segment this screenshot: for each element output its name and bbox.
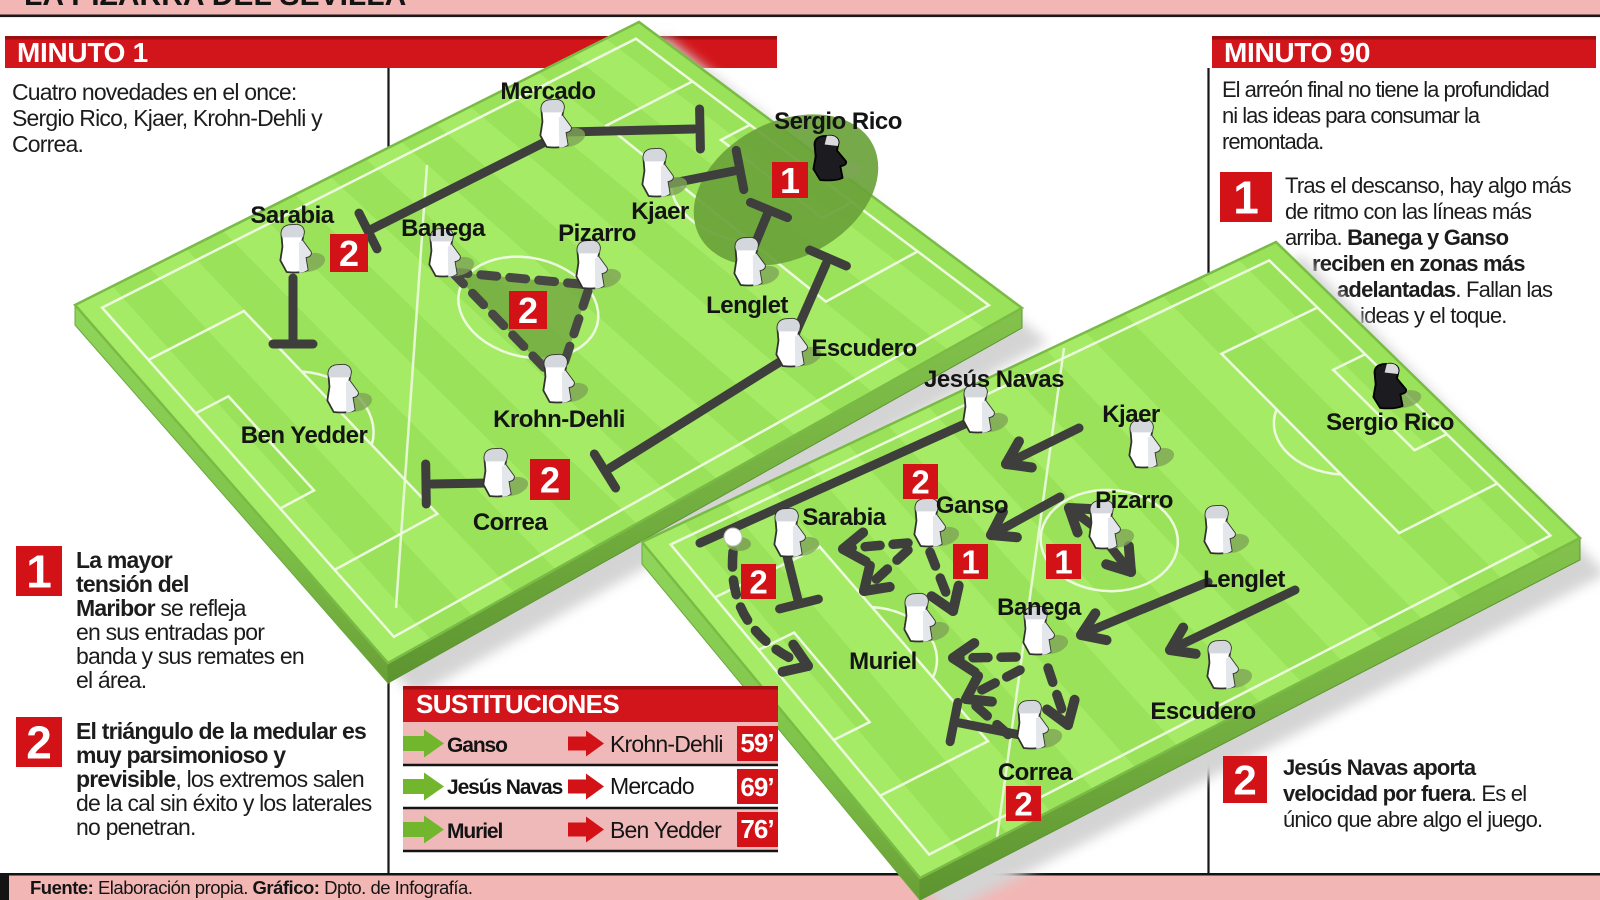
svg-text:2: 2 (911, 463, 929, 500)
svg-text:Ganso: Ganso (447, 734, 507, 757)
svg-text:Kjaer: Kjaer (631, 198, 689, 225)
svg-text:Mercado: Mercado (610, 773, 694, 799)
svg-text:Sergio Rico: Sergio Rico (774, 108, 902, 135)
svg-text:Escudero: Escudero (1150, 698, 1255, 725)
svg-text:LA PIZARRA DEL SEVILLA: LA PIZARRA DEL SEVILLA (24, 0, 406, 12)
svg-text:Pizarro: Pizarro (1095, 487, 1173, 514)
svg-text:Correa: Correa (473, 509, 549, 536)
svg-text:Sarabia: Sarabia (250, 202, 334, 229)
svg-text:2: 2 (749, 563, 767, 600)
svg-text:2: 2 (1014, 785, 1032, 822)
svg-text:Muriel: Muriel (849, 648, 917, 675)
svg-text:1: 1 (1233, 172, 1259, 224)
svg-text:1: 1 (961, 543, 979, 580)
svg-text:Ganso: Ganso (936, 492, 1008, 519)
svg-text:Krohn-Dehli: Krohn-Dehli (493, 406, 625, 433)
svg-text:1: 1 (780, 160, 800, 201)
svg-text:59’: 59’ (740, 728, 773, 758)
svg-text:76’: 76’ (740, 814, 773, 844)
svg-text:Escudero: Escudero (811, 335, 916, 362)
svg-text:Correa: Correa (998, 759, 1074, 786)
svg-text:Fuente: Elaboración propia. Gr: Fuente: Elaboración propia. Gráfico: Dpt… (30, 877, 472, 898)
svg-text:Sarabia: Sarabia (802, 504, 886, 531)
svg-text:2: 2 (26, 717, 52, 769)
svg-text:Lenglet: Lenglet (706, 292, 788, 319)
svg-text:Mercado: Mercado (500, 78, 595, 105)
svg-text:2: 2 (1233, 757, 1256, 804)
svg-text:MINUTO 1: MINUTO 1 (17, 37, 148, 68)
svg-text:Ben Yedder: Ben Yedder (241, 422, 368, 449)
svg-text:1: 1 (26, 546, 52, 598)
svg-text:69’: 69’ (740, 772, 773, 802)
svg-text:Kjaer: Kjaer (1102, 401, 1160, 428)
svg-text:Ben Yedder: Ben Yedder (610, 817, 722, 843)
svg-text:Pizarro: Pizarro (558, 220, 636, 247)
svg-text:SUSTITUCIONES: SUSTITUCIONES (416, 689, 619, 719)
svg-text:2: 2 (540, 460, 560, 501)
svg-text:Banega: Banega (997, 594, 1082, 621)
svg-text:Sergio Rico: Sergio Rico (1326, 409, 1454, 436)
svg-text:Jesús Navas: Jesús Navas (924, 366, 1064, 393)
svg-text:Muriel: Muriel (447, 820, 503, 843)
svg-text:Krohn-Dehli: Krohn-Dehli (610, 731, 723, 757)
svg-text:1: 1 (1054, 543, 1072, 580)
svg-text:MINUTO 90: MINUTO 90 (1224, 37, 1370, 68)
svg-text:2: 2 (518, 290, 538, 331)
svg-text:Banega: Banega (401, 215, 486, 242)
svg-text:Jesús Navas: Jesús Navas (447, 776, 563, 799)
svg-text:2: 2 (339, 233, 359, 274)
svg-text:Lenglet: Lenglet (1203, 566, 1285, 593)
